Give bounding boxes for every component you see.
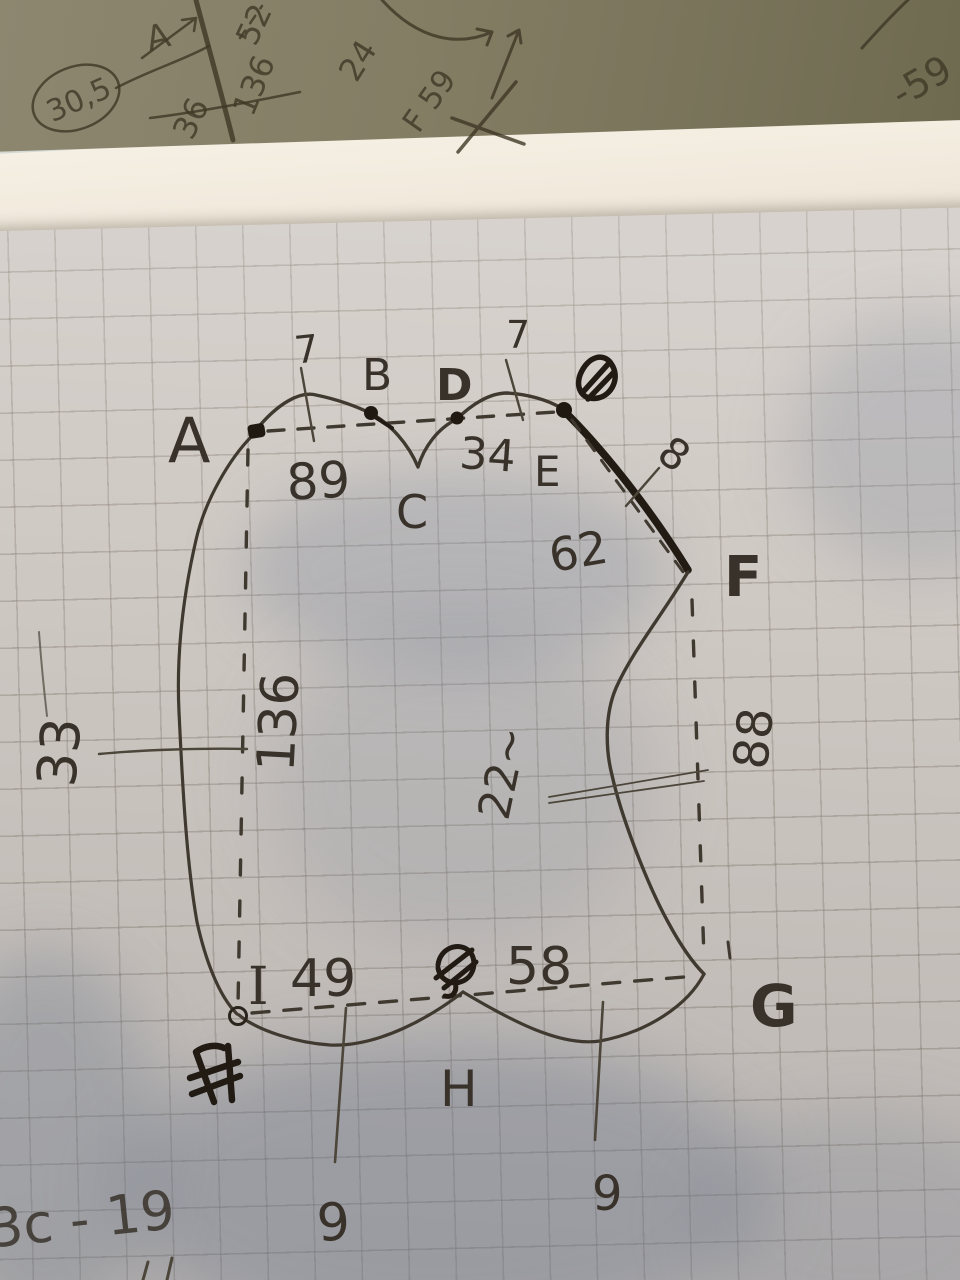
num-58: 58 <box>506 937 572 997</box>
corner-note: 3c - 19 <box>0 1178 178 1260</box>
photo-of-hand-drawn-sketch: 30,5 A 52 136 36 24 F 59 -59 <box>0 0 960 1280</box>
num-49: 49 <box>290 949 356 1009</box>
outline-left-side <box>178 436 252 1014</box>
arc-arrow-top <box>382 0 492 45</box>
chord-f-g <box>692 600 704 958</box>
num-136-top: 136 <box>225 50 283 121</box>
arrow-mark-top <box>492 30 521 98</box>
label-f: F <box>724 545 762 610</box>
num-24: 24 <box>331 33 385 88</box>
label-i: I <box>248 957 269 1017</box>
scribbled-label-near-e <box>579 357 616 399</box>
label-c: C <box>396 485 428 539</box>
f-59-label: F 59 <box>396 63 464 139</box>
dot-a <box>247 423 266 439</box>
label-h: H <box>440 1060 478 1118</box>
num-34: 34 <box>458 428 517 483</box>
num-8: 8 <box>649 426 699 481</box>
leader-lines <box>39 360 708 1280</box>
x-mark-top <box>452 82 524 152</box>
oval-value: 30,5 <box>41 71 116 130</box>
num-neg59: -59 <box>884 47 960 116</box>
num-36: 36 <box>165 92 217 145</box>
top-sheet-drawing: 30,5 A 52 136 36 24 F 59 -59 <box>23 0 960 152</box>
num-9-right: 9 <box>592 1166 623 1222</box>
num-22: 22~ <box>469 722 538 823</box>
label-e: E <box>534 447 561 496</box>
stray-mark-bottom <box>143 1258 172 1280</box>
chord-a-i <box>238 450 248 1005</box>
label-d: D <box>436 360 473 411</box>
num-7-right: 7 <box>506 313 530 357</box>
num-52: 52 <box>228 0 280 51</box>
stray-mark-left <box>39 632 47 716</box>
dot-d <box>451 412 464 425</box>
num-62: 62 <box>545 520 612 583</box>
leader-33 <box>99 749 247 754</box>
num-7-left: 7 <box>292 326 321 372</box>
tick-7-right <box>506 360 523 420</box>
right-curve-top <box>862 0 908 48</box>
label-b: B <box>362 350 392 401</box>
leader-9-right <box>595 1002 603 1140</box>
leader-22 <box>549 770 708 803</box>
label-g: G <box>750 972 798 1040</box>
leader-9-left <box>335 1008 346 1162</box>
num-89: 89 <box>285 450 352 511</box>
num-136: 136 <box>246 671 311 773</box>
num-88: 88 <box>723 705 785 772</box>
scribbled-label-near-h <box>436 946 476 996</box>
num-9-left: 9 <box>315 1192 352 1254</box>
tick-above-g <box>728 942 730 958</box>
sketch-overlay: 30,5 A 52 136 36 24 F 59 -59 <box>0 0 960 1280</box>
scribbled-label-near-i <box>190 1046 240 1102</box>
num-33: 33 <box>25 715 94 789</box>
dot-e <box>556 402 572 418</box>
label-a: A <box>168 404 210 477</box>
